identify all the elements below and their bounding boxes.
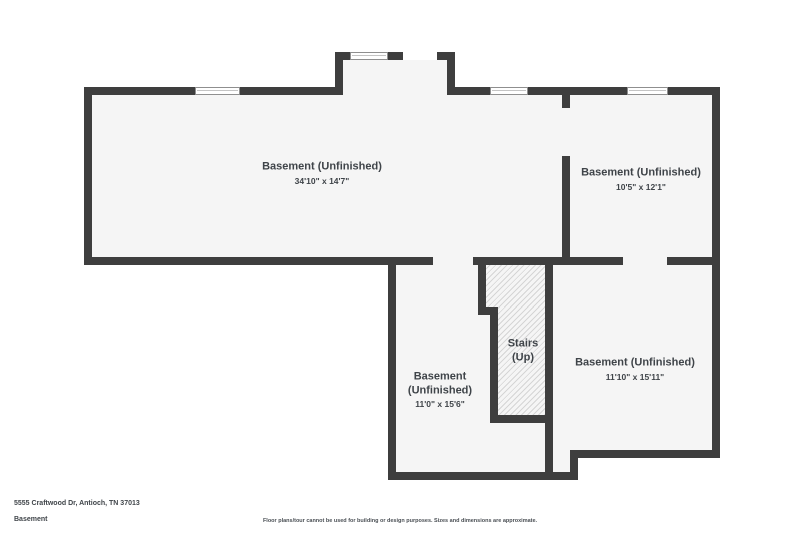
door-opening-right-rooms	[623, 257, 667, 265]
room-label-basement-large: Basement (Unfinished)	[262, 160, 382, 174]
window	[350, 52, 388, 60]
room-dims-basement-large: 34'10" x 14'7"	[295, 176, 350, 186]
wall-exterior-bottom-right	[570, 450, 720, 458]
wall-exterior-right	[712, 87, 720, 458]
room-label-basement-bottom-left: Basement (Unfinished)	[384, 371, 496, 398]
room-dims-basement-bottom-left: 11'0" x 15'6"	[415, 399, 464, 409]
stairs-label: Stairs (Up)	[501, 338, 545, 365]
room-floor-bumpout	[343, 60, 447, 95]
wall-middle-left	[84, 257, 433, 265]
window	[627, 87, 668, 95]
wall-stairs-left-upper	[478, 257, 486, 315]
window	[490, 87, 528, 95]
wall-stairs-bottom	[490, 415, 553, 423]
wall-exterior-left	[84, 87, 92, 265]
stairs-hatch-upper	[486, 265, 545, 307]
footer-disclaimer: Floor plans/tour cannot be used for buil…	[0, 518, 800, 524]
wall-bottom-left-room-left	[388, 257, 396, 480]
wall-interior-stub-bottom	[562, 156, 570, 265]
footer-address: 5555 Craftwood Dr, Antioch, TN 37013	[14, 500, 140, 507]
door-opening-large-to-top-right	[562, 108, 570, 156]
room-floor-bottom-right-notch	[553, 450, 570, 472]
wall-bumpout-left	[335, 52, 343, 95]
wall-bumpout-right	[447, 52, 455, 95]
room-dims-basement-bottom-right: 11'10" x 15'11"	[606, 372, 664, 382]
room-label-basement-top-right: Basement (Unfinished)	[581, 166, 701, 180]
wall-opening	[403, 52, 437, 60]
wall-bottom-step	[570, 450, 578, 480]
door-opening-large-to-bottom-left	[433, 257, 473, 265]
wall-exterior-top-right	[447, 87, 720, 95]
wall-stairs-left-lower	[490, 307, 498, 423]
room-label-basement-bottom-right: Basement (Unfinished)	[575, 356, 695, 370]
floorplan-canvas: Basement (Unfinished) 34'10" x 14'7" Bas…	[0, 0, 800, 533]
window	[195, 87, 240, 95]
wall-stairs-right	[545, 257, 553, 480]
wall-interior-stub-top	[562, 95, 570, 108]
room-dims-basement-top-right: 10'5" x 12'1"	[616, 182, 666, 192]
